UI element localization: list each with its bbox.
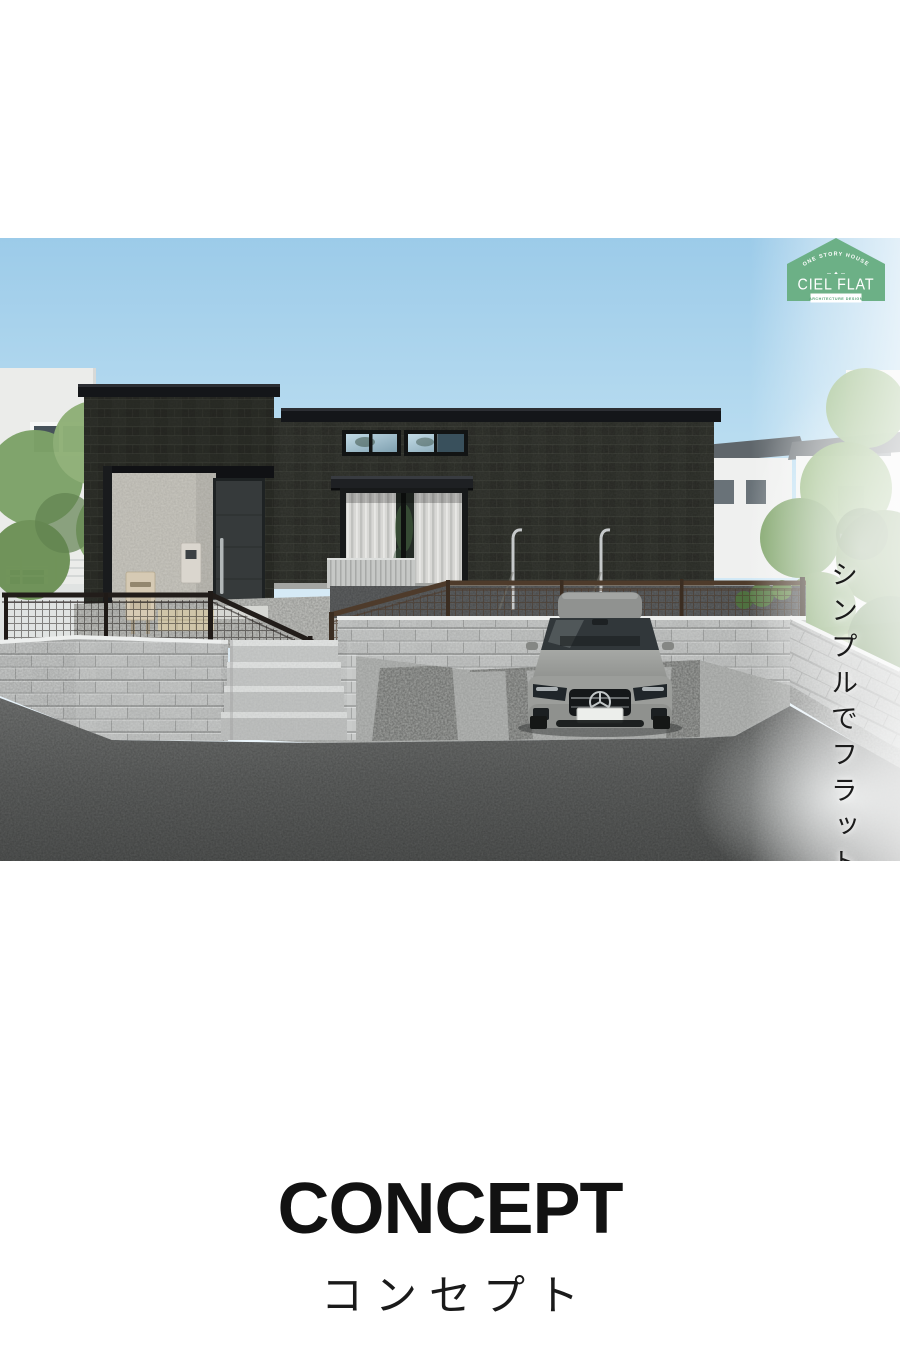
brand-badge: ONE STORY HOUSE CIEL FLAT ARCHITECTURE D… (786, 238, 886, 309)
badge-banner-text: ARCHITECTURE DESIGN (809, 297, 863, 301)
badge-brand-name: CIEL FLAT (798, 277, 875, 294)
slit-windows (342, 430, 468, 456)
intercom-unit (181, 543, 201, 583)
deck-skirt (327, 558, 415, 588)
entrance-volume (78, 384, 280, 622)
entrance-steps (221, 640, 347, 740)
door-handle (220, 538, 224, 594)
house-exterior-illustration (0, 238, 900, 861)
section-caption: CONCEPT コンセプト (0, 1172, 900, 1323)
section-title: CONCEPT (0, 1172, 900, 1248)
tagline-label: シンプルでフラットに暮らす家 (827, 560, 857, 861)
hero-photo: シンプルでフラットに暮らす家 in清武加納 ONE STORY HOUSE CI… (0, 238, 900, 861)
section-subtitle: コンセプト (0, 1262, 900, 1323)
front-door (213, 478, 265, 610)
tagline-vertical-text: シンプルでフラットに暮らす家 (823, 560, 862, 861)
main-house-volume (268, 408, 721, 589)
